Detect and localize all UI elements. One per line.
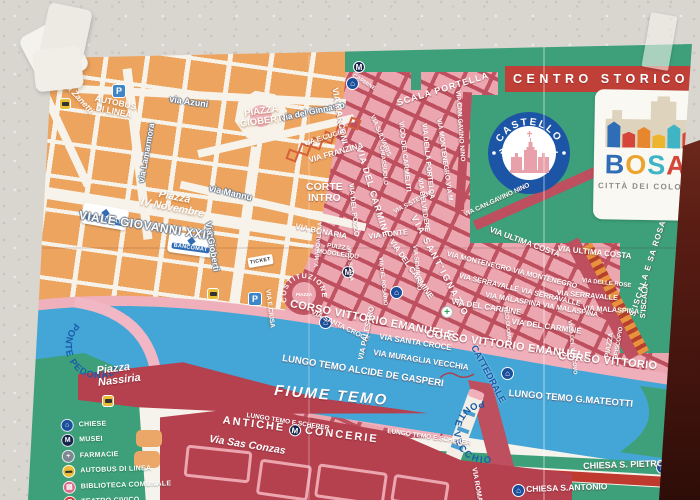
- map-label: VIA S.STEFANO: [393, 189, 436, 216]
- map-label: S'ISCALA: [639, 283, 650, 318]
- map-label: CATTEDRALE: [468, 344, 507, 405]
- map-label: LUNGO TEMO G.MATEOTTI: [508, 389, 633, 410]
- map-label: PIAZZAMODOLEDDU: [316, 241, 360, 261]
- map-label: SCALA PORTELLA: [396, 71, 490, 108]
- map-label: VICO DEI CARMELITI: [396, 121, 411, 192]
- map-label: via Lamarmora: [137, 122, 157, 183]
- map-label: Via Sas Conzas: [208, 434, 286, 457]
- map-label: VIA DEL ROSARIO: [376, 257, 387, 306]
- photo-of-bosa-map: CENTRO STORICO: [0, 0, 700, 500]
- map-label: LUNGO TEMO E.SCHERER: [246, 412, 330, 432]
- map-label: via Azuni: [169, 95, 209, 110]
- map-label: VIA DEL POZZO: [346, 183, 359, 237]
- map-label: VIA DELLE ROSE: [581, 278, 631, 290]
- map-label: LUNGO TEMO E.SCHERER: [387, 428, 471, 447]
- map-label: CARMINE: [351, 74, 376, 93]
- map-label: VIA CAN.GAVINO NINO: [454, 90, 466, 162]
- map-label: VIA CAN.GAVINO NINO: [463, 182, 531, 219]
- map-label: VIA E.CIUSA: [264, 289, 276, 328]
- map-label: VIA ROMA: [470, 467, 483, 500]
- map-label: Via Gioberti: [202, 221, 220, 272]
- map-label: CHIESA S.ANTONIO: [526, 482, 608, 494]
- map-label: PIAZZAGIOBERTI: [238, 104, 286, 131]
- map-label: VIA MONTENEGRO VIA M.: [435, 118, 454, 203]
- map-label: S'ISCALA E SA ROSA: [629, 219, 668, 317]
- map-label: VIA ULTIMA COSTA: [488, 226, 561, 259]
- map-label: CORTEINTRO: [306, 182, 343, 205]
- map-label: PiazzaNassiria: [96, 361, 141, 390]
- map-label: PiazzaIV Novembre: [140, 186, 207, 220]
- map-label: AUTOBUSDI LINEA: [92, 94, 137, 121]
- map-label: via Mannu: [208, 184, 253, 203]
- map-label: FIUME TEMO: [274, 383, 389, 409]
- tape-top-left: [26, 4, 111, 96]
- map-label: VIA ULTIMA COSTA: [557, 245, 632, 261]
- map-label: CHIESA S. PIETRO: [583, 459, 664, 472]
